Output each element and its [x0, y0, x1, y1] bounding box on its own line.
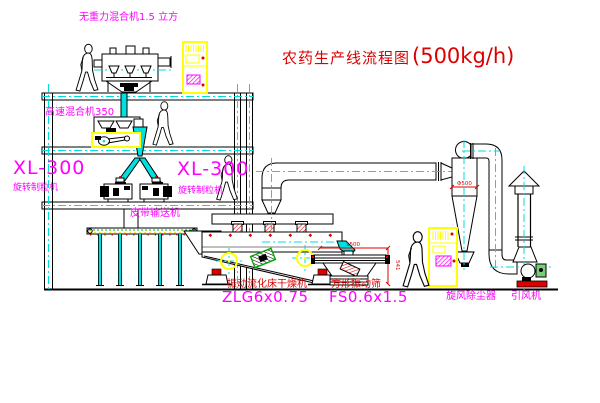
rotary-granulator-right [140, 176, 172, 202]
title-capacity: (500kg/h) [412, 44, 514, 68]
screen-height-dim: 541 [394, 260, 400, 271]
label-granulator-right-model: XL-300 [177, 160, 249, 179]
rotary-granulator-left [100, 176, 132, 202]
person-floor2 [153, 102, 173, 145]
label-belt-conveyor: 皮带输送机 [130, 209, 180, 219]
label-fan: 引风机 [511, 292, 541, 302]
label-cyclone: 旋风除尘器 [446, 292, 496, 302]
person-roof [76, 44, 98, 91]
label-granulator-left-model: XL-300 [13, 159, 85, 178]
person-ground [403, 232, 429, 287]
title-text: 农药生产线流程图 [282, 47, 410, 68]
cyclone-diameter-dim: Φ500 [457, 181, 472, 187]
screen-length-dim: 1500 [346, 242, 360, 248]
control-cabinet-ground [429, 228, 457, 286]
cad-canvas: Φ500 1500 [0, 0, 600, 403]
label-high-speed-mixer: 高速混合机350 [45, 108, 114, 118]
label-screen-model: FS0.6x1.5 [329, 290, 408, 305]
label-granulator-right-name: 旋转制粒机 [178, 187, 223, 196]
induced-draft-fan [517, 264, 547, 287]
label-dryer-model: ZLG6x0.75 [222, 290, 309, 305]
label-gravity-mixer: 无重力混合机1.5 立方 [79, 13, 178, 23]
belt-conveyor [87, 228, 197, 286]
drawing-title: 农药生产线流程图 (500kg/h) [282, 44, 514, 68]
gravity-free-mixer [94, 46, 172, 92]
label-granulator-left-name: 旋转制粒机 [13, 184, 58, 193]
control-cabinet-roof [183, 42, 207, 93]
high-speed-mixer [92, 93, 147, 156]
fluid-bed-dryer [184, 214, 355, 285]
